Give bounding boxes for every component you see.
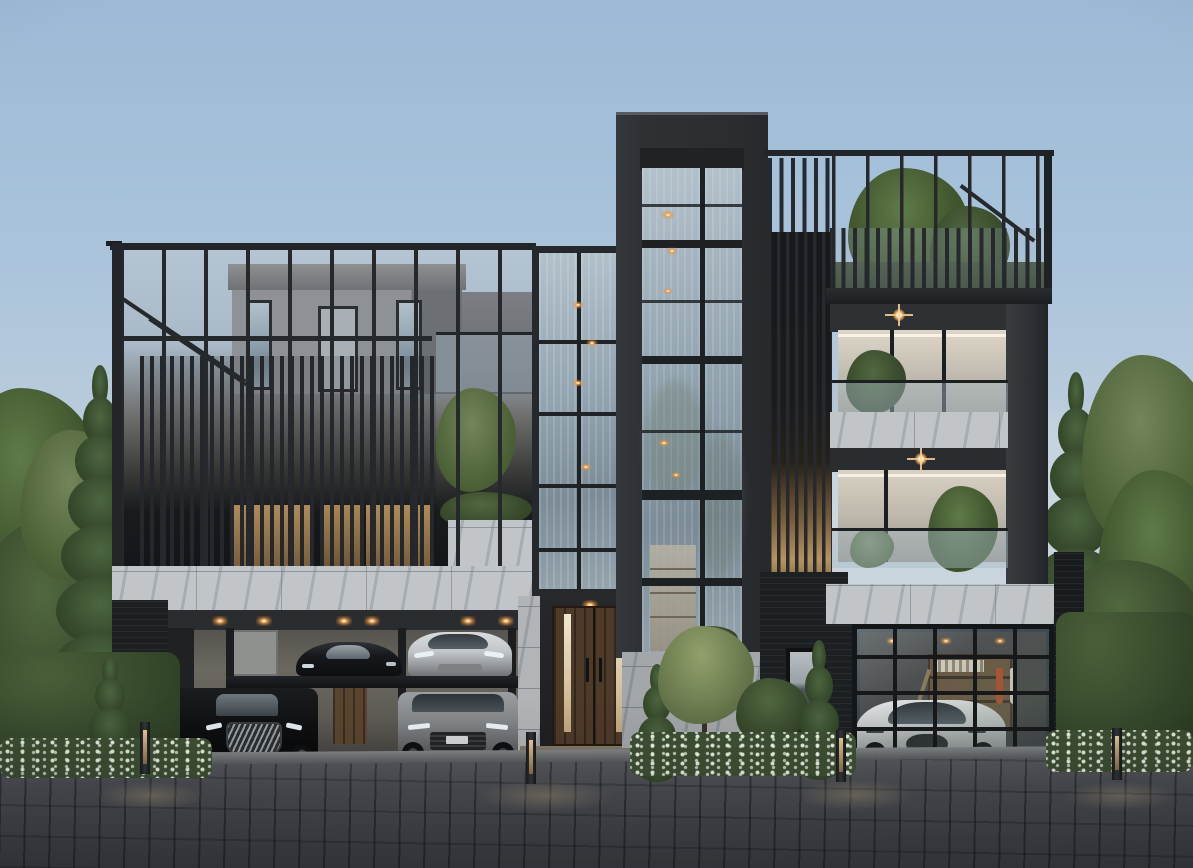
garage-stone-band xyxy=(826,584,1078,626)
ceiling-downlight xyxy=(498,616,514,626)
bollard-light xyxy=(526,732,536,784)
license-plate xyxy=(446,736,468,744)
stair-line xyxy=(650,616,696,618)
architectural-render xyxy=(0,0,1193,868)
roof-railing-posts xyxy=(832,156,1052,290)
bollard-light xyxy=(1112,728,1122,780)
corner-post xyxy=(1044,150,1052,292)
interior-downlight xyxy=(666,248,677,255)
screen-edge-column xyxy=(112,243,122,568)
light-pool xyxy=(470,778,620,814)
interior-ceiling-light xyxy=(838,334,1006,337)
car-bumper xyxy=(438,664,482,672)
car-greenhouse xyxy=(412,694,504,712)
roof-pickets xyxy=(768,158,832,232)
mullion xyxy=(539,412,621,416)
balcony-soffit xyxy=(830,304,1006,332)
mullion xyxy=(539,340,621,344)
glass-balustrade xyxy=(832,380,1008,414)
mullion xyxy=(642,578,742,586)
mullion xyxy=(539,484,621,488)
interior-ceiling-light xyxy=(838,474,1006,477)
door-handle xyxy=(586,658,589,682)
glass-balustrade xyxy=(832,528,1008,568)
interior-downlight xyxy=(572,302,583,309)
interior-downlight xyxy=(663,288,673,294)
car-headlight xyxy=(386,662,396,666)
mullion xyxy=(642,490,742,500)
ceiling-downlight xyxy=(212,616,228,626)
interior-downlight xyxy=(662,211,675,219)
bollard-light xyxy=(140,722,150,774)
interior-downlight xyxy=(586,340,597,347)
ceiling-downlight xyxy=(256,616,272,626)
door-glass-strip xyxy=(564,614,571,732)
car-headlight xyxy=(302,664,314,668)
flower-bed xyxy=(630,732,856,776)
light-pool xyxy=(90,780,210,812)
screen-top-beam xyxy=(110,243,536,250)
mullion xyxy=(642,430,742,433)
car-windshield xyxy=(326,645,370,659)
mullion xyxy=(642,300,742,303)
ceiling-downlight xyxy=(364,616,380,626)
ceiling-downlight xyxy=(460,616,476,626)
stair-line xyxy=(650,568,696,570)
roof-rail-beam xyxy=(764,150,1054,156)
stacker-deck-beam xyxy=(226,676,518,688)
marble-spandrel xyxy=(830,412,1008,448)
louver-screen xyxy=(768,232,832,604)
interior-downlight xyxy=(658,440,669,447)
ceiling-downlight xyxy=(336,616,352,626)
car-windshield xyxy=(428,634,488,649)
door-split xyxy=(593,608,595,744)
backwall-utility-door xyxy=(228,630,278,676)
light-pool xyxy=(1060,780,1180,812)
backwall-timber-door xyxy=(333,686,367,744)
mullion xyxy=(642,204,742,207)
screen-posts xyxy=(120,250,532,568)
interior-downlight xyxy=(572,380,583,387)
flower-bed xyxy=(0,738,212,778)
screen-mid-rail xyxy=(120,336,432,341)
mullion xyxy=(642,240,742,248)
roof-slab xyxy=(826,288,1052,304)
door-handle xyxy=(599,658,602,682)
bollard-light xyxy=(836,730,846,782)
parapet-highlight xyxy=(616,112,768,115)
stair-line xyxy=(650,592,696,594)
mullion xyxy=(642,356,742,364)
mullion xyxy=(539,548,621,552)
light-pool xyxy=(790,778,920,812)
interior-downlight xyxy=(671,472,681,478)
interior-downlight xyxy=(580,464,591,471)
fin-column xyxy=(1006,304,1048,604)
reveal-shadow xyxy=(640,148,744,170)
balcony-starlight xyxy=(906,444,936,474)
balcony-starlight xyxy=(884,300,914,330)
car-windshield xyxy=(216,694,278,716)
